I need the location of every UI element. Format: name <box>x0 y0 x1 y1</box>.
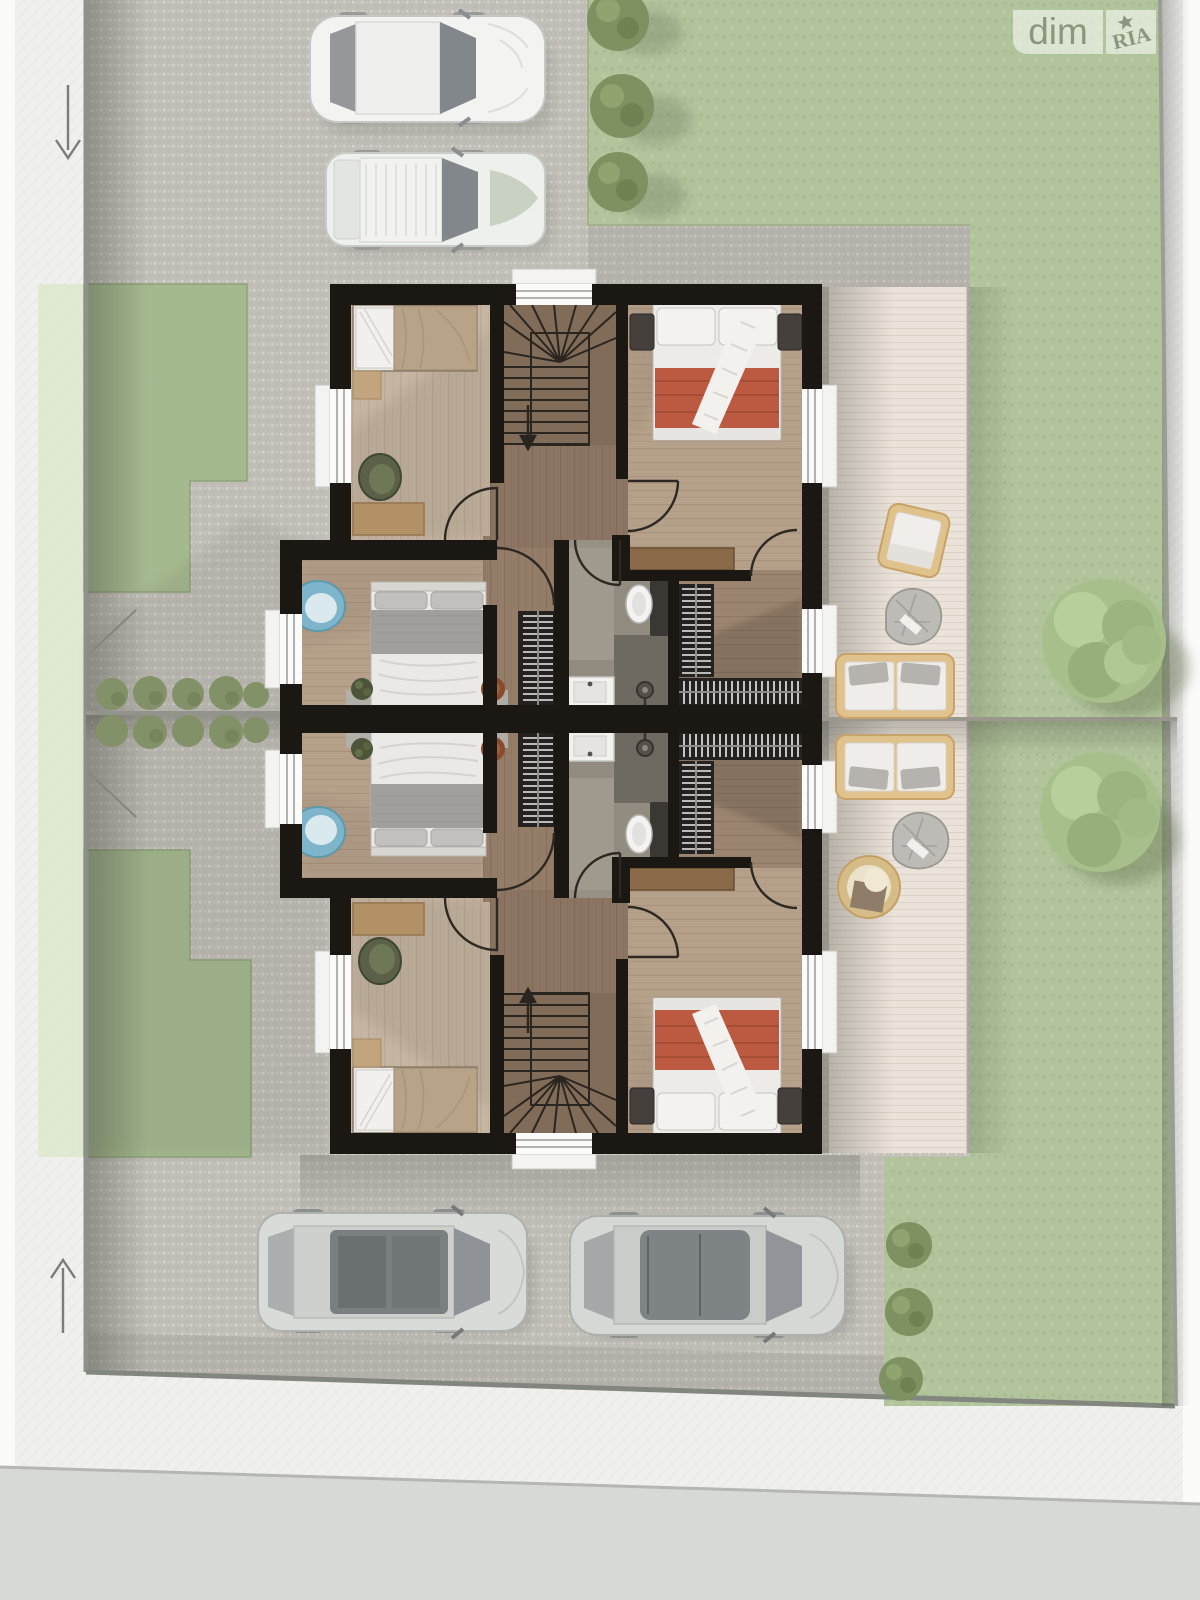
svg-text:dim: dim <box>1028 11 1088 52</box>
